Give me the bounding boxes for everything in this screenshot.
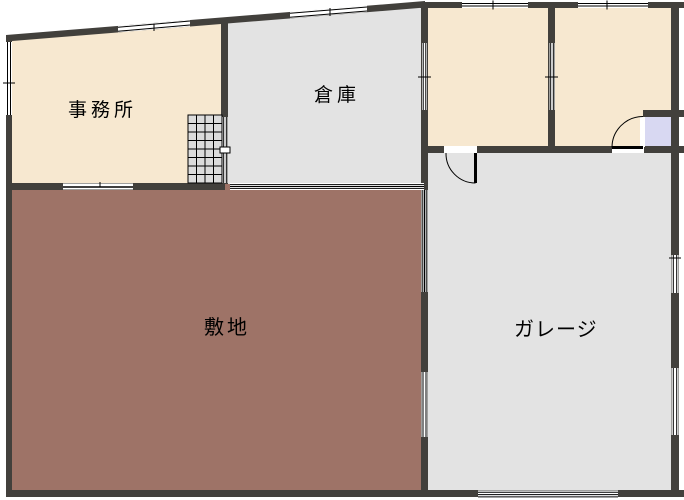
floor-plan-drawing	[0, 0, 684, 500]
stairs	[188, 115, 222, 183]
wall-entry-top	[643, 110, 684, 117]
office-label: 事務所	[68, 101, 137, 120]
window-garage-east-lower	[672, 368, 679, 435]
floor-plan: 事務所 倉庫 敷地 ガレージ	[0, 0, 684, 500]
site-label: 敷地	[204, 317, 250, 337]
garage-label: ガレージ	[514, 319, 598, 339]
garage-shutter	[478, 491, 618, 500]
window-garage-west-lower	[422, 372, 428, 437]
entry-area	[645, 117, 671, 147]
room-fills	[12, 3, 671, 490]
room-upper-left	[424, 8, 552, 148]
window-warehouse-bottom	[230, 183, 424, 190]
window-garage-west-upper	[422, 190, 428, 292]
warehouse-label: 倉庫	[314, 86, 360, 105]
